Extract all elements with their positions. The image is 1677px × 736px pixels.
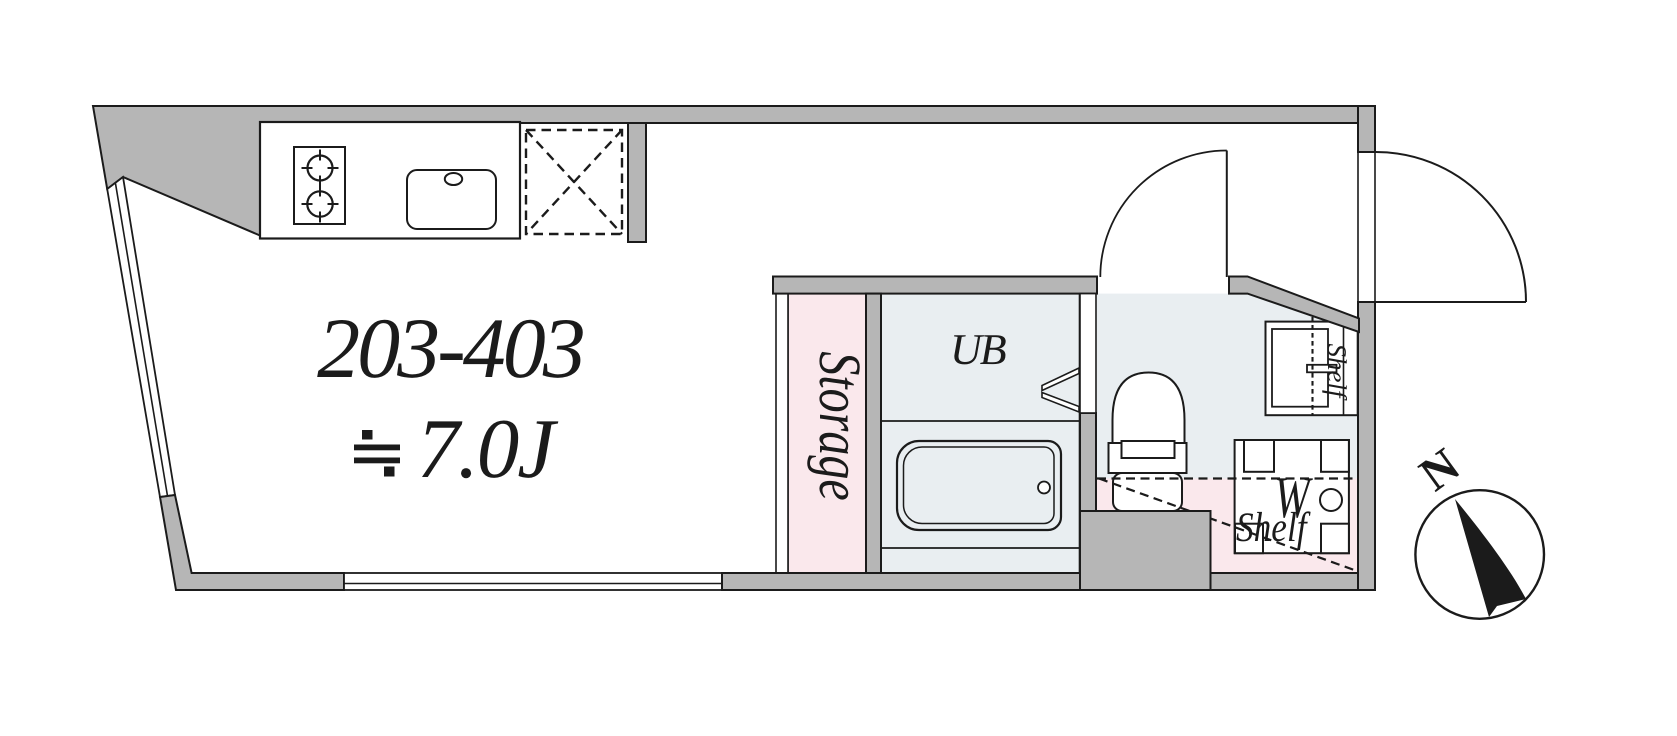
svg-text:UB: UB <box>950 325 1006 374</box>
svg-text:Shelf: Shelf <box>1322 344 1352 401</box>
svg-text:7.0J: 7.0J <box>417 402 559 496</box>
svg-text:203-403: 203-403 <box>317 300 584 396</box>
svg-text:Storage: Storage <box>807 351 873 500</box>
svg-text:Shelf: Shelf <box>1236 505 1311 551</box>
